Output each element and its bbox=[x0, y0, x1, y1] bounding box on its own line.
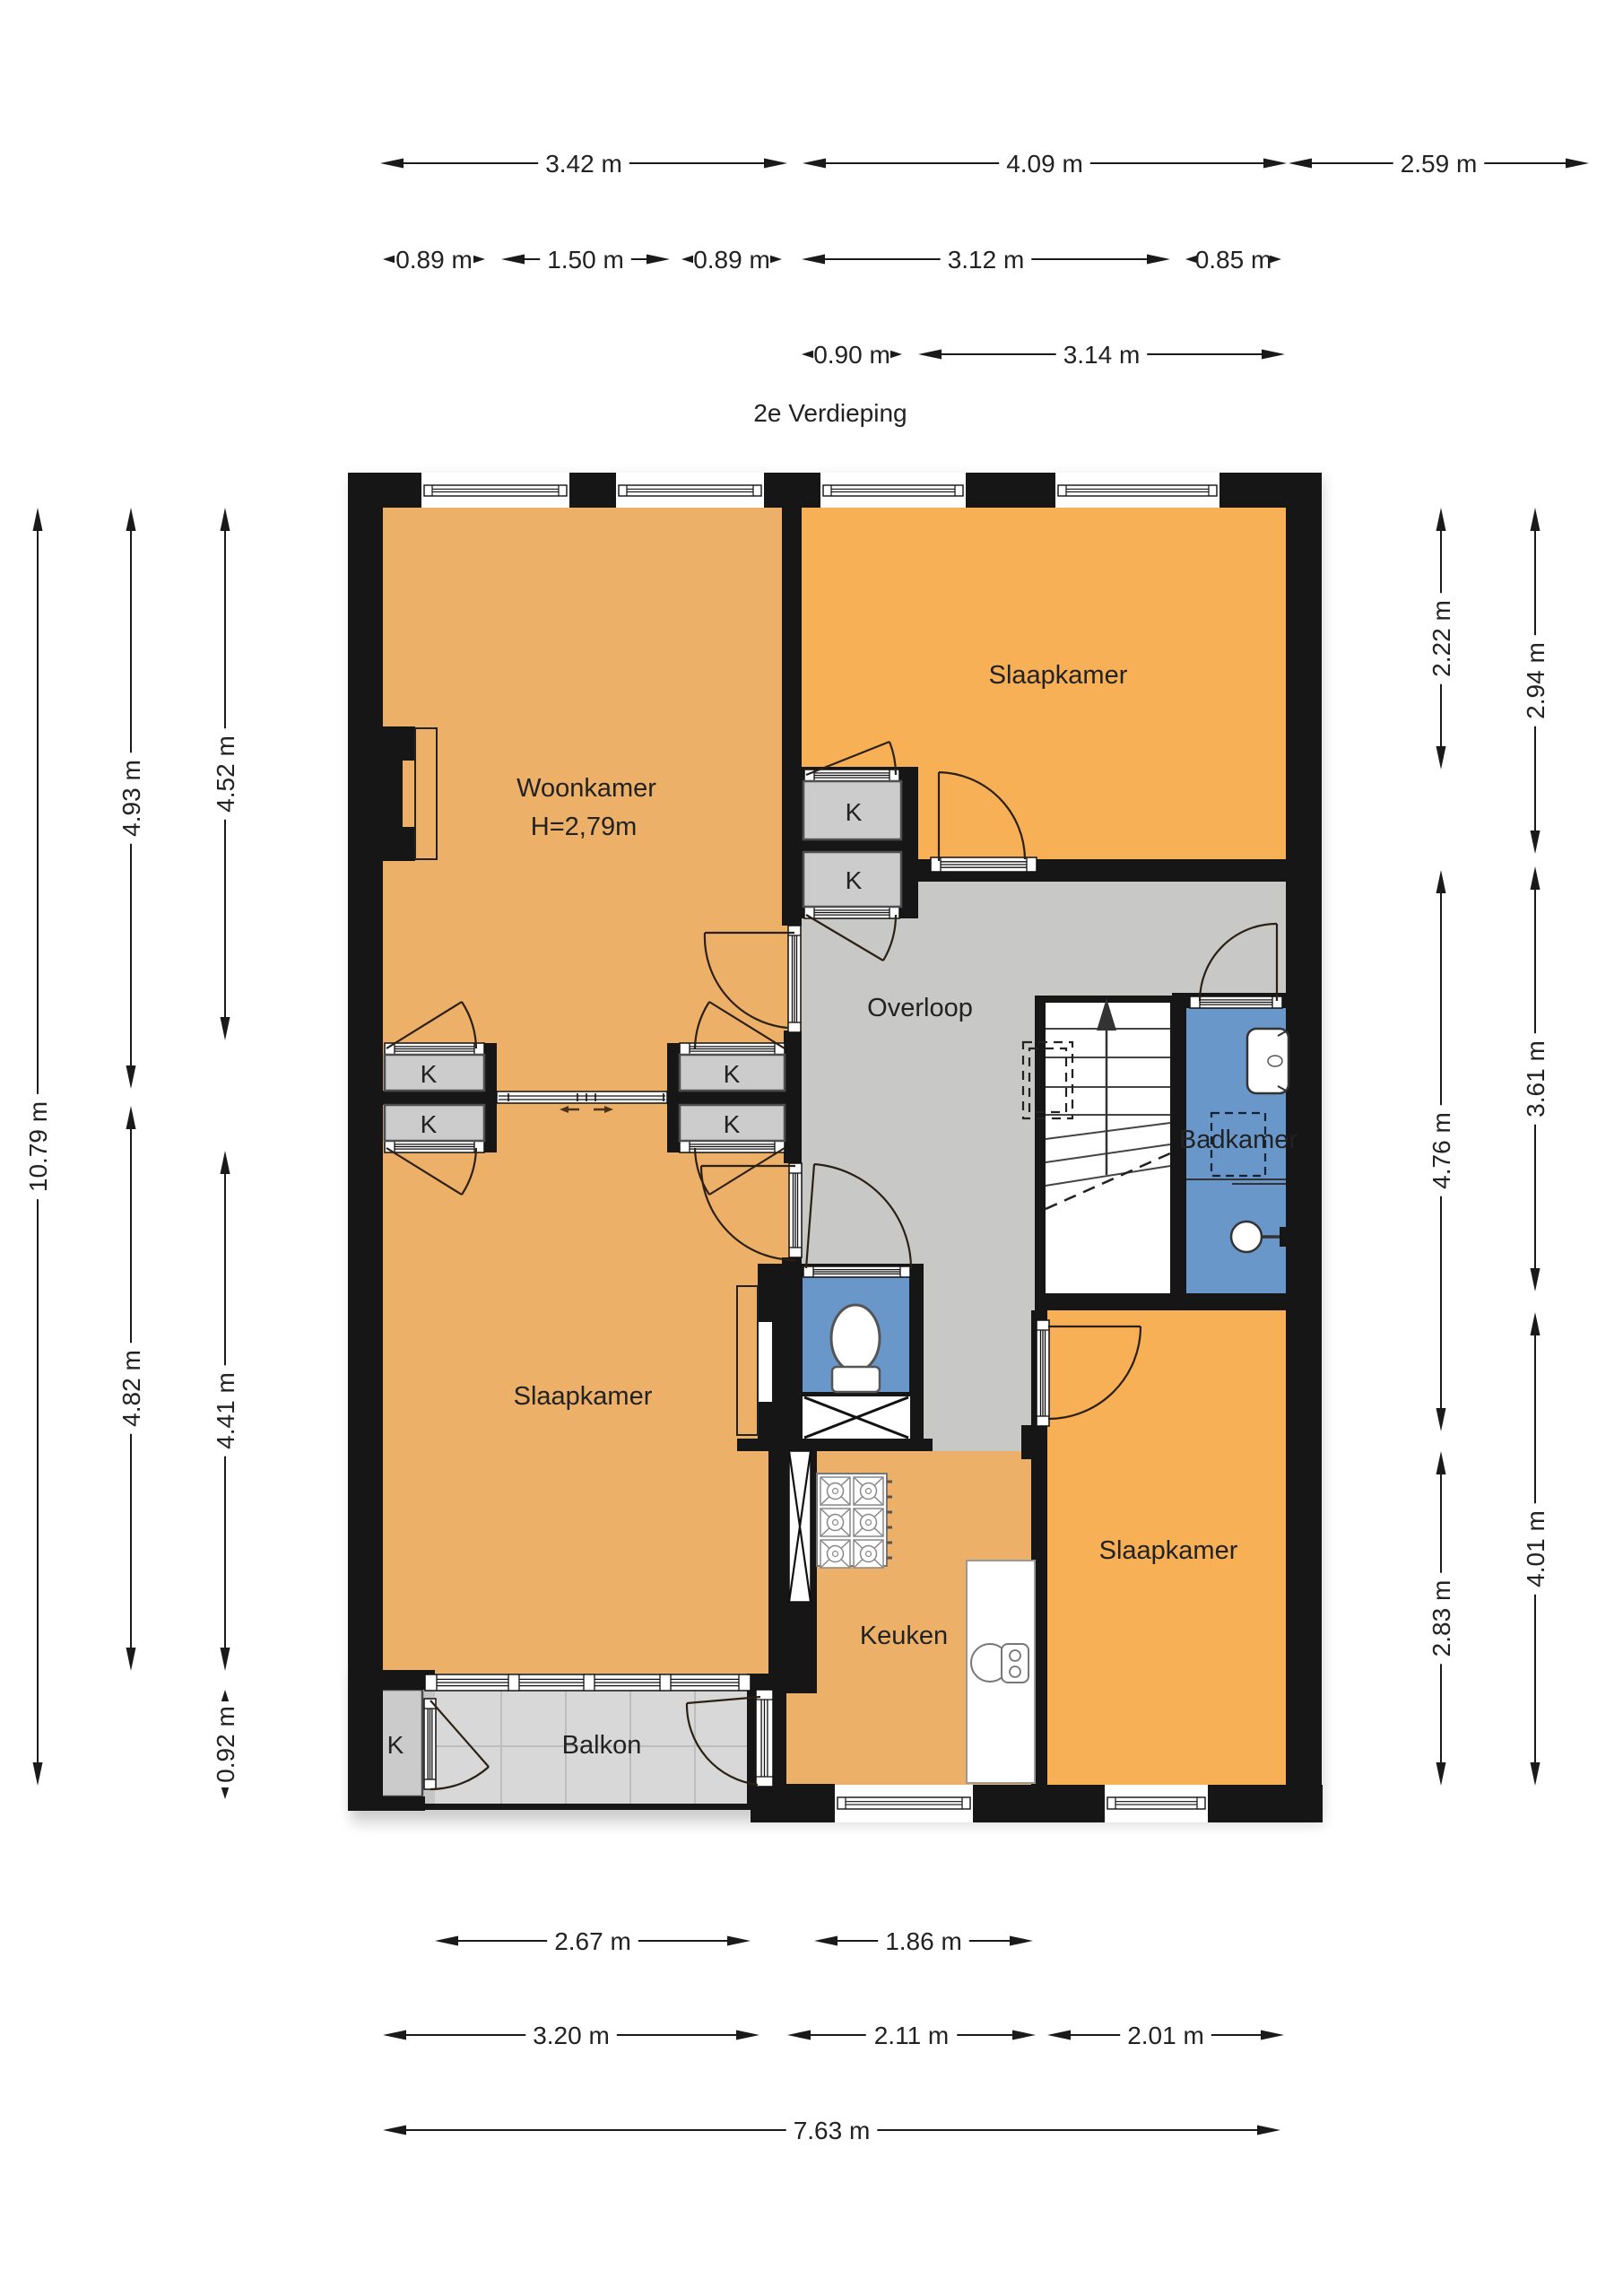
svg-text:4.52 m: 4.52 m bbox=[212, 735, 239, 813]
svg-text:0.85 m: 0.85 m bbox=[1195, 246, 1272, 274]
svg-text:3.61 m: 3.61 m bbox=[1522, 1040, 1549, 1118]
svg-text:0.90 m: 0.90 m bbox=[813, 341, 890, 369]
svg-text:K: K bbox=[421, 1110, 438, 1138]
svg-text:K: K bbox=[724, 1060, 741, 1088]
svg-text:2.67 m: 2.67 m bbox=[554, 1927, 631, 1955]
svg-text:K: K bbox=[846, 866, 863, 894]
svg-text:10.79 m: 10.79 m bbox=[24, 1101, 52, 1192]
svg-text:0.92 m: 0.92 m bbox=[212, 1706, 239, 1783]
svg-text:2.22 m: 2.22 m bbox=[1428, 600, 1455, 677]
svg-text:Balkon: Balkon bbox=[562, 1731, 642, 1760]
svg-text:K: K bbox=[724, 1110, 741, 1138]
svg-text:3.20 m: 3.20 m bbox=[533, 2022, 610, 2049]
svg-text:H=2,79m: H=2,79m bbox=[531, 813, 637, 841]
svg-text:K: K bbox=[387, 1731, 404, 1759]
svg-text:4.01 m: 4.01 m bbox=[1522, 1510, 1549, 1587]
svg-text:Slaapkamer: Slaapkamer bbox=[514, 1382, 653, 1411]
svg-text:2.94 m: 2.94 m bbox=[1522, 642, 1549, 719]
svg-text:0.89 m: 0.89 m bbox=[395, 246, 473, 274]
svg-text:3.14 m: 3.14 m bbox=[1063, 341, 1141, 369]
svg-text:Overloop: Overloop bbox=[867, 994, 973, 1022]
svg-text:Slaapkamer: Slaapkamer bbox=[989, 661, 1128, 690]
svg-text:Badkamer: Badkamer bbox=[1179, 1126, 1298, 1154]
svg-text:3.12 m: 3.12 m bbox=[948, 246, 1025, 274]
svg-text:Slaapkamer: Slaapkamer bbox=[1099, 1536, 1238, 1565]
svg-text:2.83 m: 2.83 m bbox=[1428, 1580, 1455, 1657]
svg-text:1.86 m: 1.86 m bbox=[885, 1927, 962, 1955]
svg-text:4.09 m: 4.09 m bbox=[1006, 150, 1083, 178]
svg-text:2.01 m: 2.01 m bbox=[1127, 2022, 1204, 2049]
svg-text:7.63 m: 7.63 m bbox=[794, 2117, 871, 2144]
svg-text:Woonkamer: Woonkamer bbox=[516, 774, 656, 803]
svg-text:3.42 m: 3.42 m bbox=[545, 150, 622, 178]
svg-text:4.76 m: 4.76 m bbox=[1428, 1112, 1455, 1189]
svg-text:4.93 m: 4.93 m bbox=[117, 760, 145, 837]
svg-text:Keuken: Keuken bbox=[860, 1622, 948, 1650]
svg-text:2.11 m: 2.11 m bbox=[874, 2022, 950, 2049]
svg-text:4.41 m: 4.41 m bbox=[212, 1372, 239, 1449]
svg-text:4.82 m: 4.82 m bbox=[117, 1350, 145, 1427]
svg-text:2.59 m: 2.59 m bbox=[1401, 150, 1478, 178]
svg-text:0.89 m: 0.89 m bbox=[693, 246, 770, 274]
svg-text:K: K bbox=[421, 1060, 438, 1088]
svg-text:1.50 m: 1.50 m bbox=[547, 246, 624, 274]
svg-text:K: K bbox=[846, 798, 863, 826]
svg-text:2e Verdieping: 2e Verdieping bbox=[753, 399, 907, 427]
